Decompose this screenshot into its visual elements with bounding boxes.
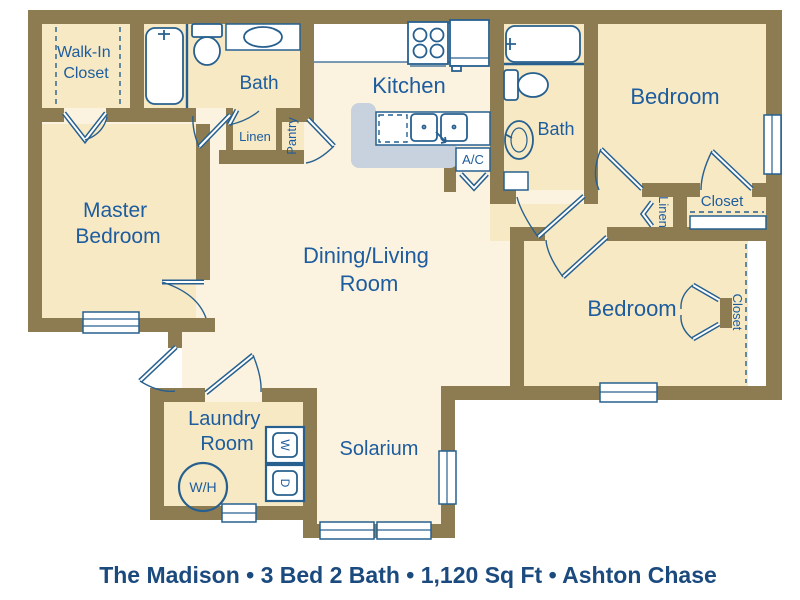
stove-icon <box>408 22 448 64</box>
label-kitchen: Kitchen <box>372 73 445 98</box>
toilet2-bowl-icon <box>518 73 548 97</box>
label-solarium: Solarium <box>340 438 419 460</box>
label-ac: A/C <box>462 152 484 167</box>
label-bedroom-bottom: Bedroom <box>587 296 676 321</box>
bath-cabinet <box>504 172 528 190</box>
floor-plan: Walk-In Closet Bath Kitchen Bath Bedroom… <box>0 0 800 600</box>
kitchen-island-bar <box>351 143 458 168</box>
label-linen-hall: Linen <box>656 196 671 228</box>
bathtub2-icon <box>506 26 580 62</box>
label-bath-master: Bath <box>239 73 278 94</box>
kitchen-sink-right <box>441 114 467 141</box>
toilet-bowl-icon <box>194 37 220 65</box>
label-bedroom-top: Bedroom <box>630 84 719 109</box>
refrigerator-icon <box>450 20 489 66</box>
closet-top-shelf <box>690 216 766 229</box>
label-dryer: D <box>278 479 292 488</box>
floor-plan-page: Walk-In Closet Bath Kitchen Bath Bedroom… <box>0 0 800 600</box>
label-washer: W <box>278 439 292 451</box>
refrigerator-handle <box>452 66 461 71</box>
toilet2-tank-icon <box>504 70 518 100</box>
toilet-tank-icon <box>192 24 222 37</box>
kitchen-sink-left <box>411 114 437 141</box>
label-linen-bath: Linen <box>239 129 271 144</box>
label-bath-hall: Bath <box>537 119 574 139</box>
label-pantry: Pantry <box>284 117 299 155</box>
plan-caption: The Madison • 3 Bed 2 Bath • 1,120 Sq Ft… <box>99 562 717 588</box>
label-closet-top: Closet <box>701 193 744 210</box>
master-bedroom-window <box>83 312 139 333</box>
label-water-heater: W/H <box>189 479 216 495</box>
closet-bottom-shelf-strip <box>748 241 766 386</box>
label-closet-bottom: Closet <box>730 294 745 331</box>
